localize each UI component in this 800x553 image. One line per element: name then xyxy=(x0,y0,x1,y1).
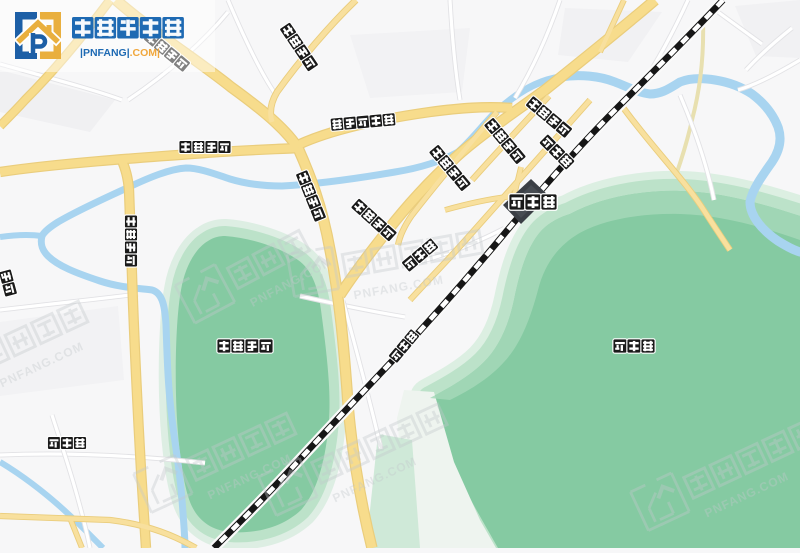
svg-text:|PNFANG|.COM|: |PNFANG|.COM| xyxy=(80,47,160,59)
